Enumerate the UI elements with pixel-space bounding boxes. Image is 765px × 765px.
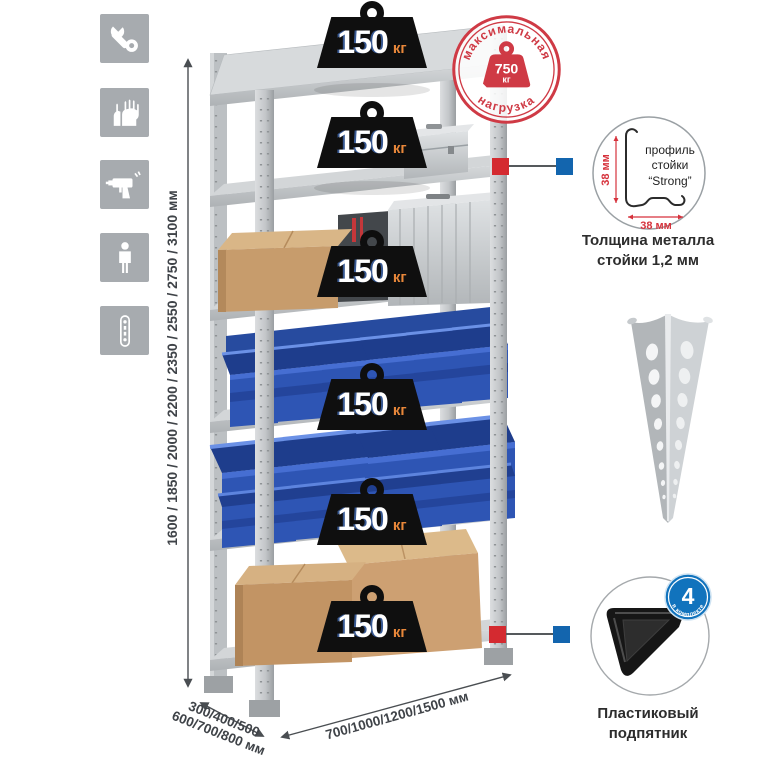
- profile-label-3: “Strong”: [648, 174, 691, 188]
- stamp-unit: кг: [502, 75, 510, 85]
- weight-value: 150: [337, 608, 387, 645]
- corner-post-image: [598, 300, 738, 535]
- max-load-stamp: максимальная нагрузка 750 кг: [450, 13, 563, 126]
- profile-dim-vertical: 38 мм: [600, 154, 612, 186]
- profile-caption: Толщина металла стойки 1,2 мм: [560, 231, 736, 270]
- profile-label-2: стойки: [652, 158, 689, 172]
- product-infographic: 150кг 150кг 150кг 150кг 150кг 150кг макс…: [0, 0, 765, 765]
- weight-shadow: [314, 83, 430, 97]
- load-weight-2: 150кг: [317, 101, 427, 168]
- callout-marker-red-top: [492, 158, 509, 175]
- weight-value: 150: [337, 124, 387, 161]
- weight-unit: кг: [393, 402, 407, 419]
- load-weight-3: 150кг: [317, 230, 427, 297]
- weight-value: 150: [337, 24, 387, 61]
- callout-marker-blue-bottom: [553, 626, 570, 643]
- weight-unit: кг: [393, 624, 407, 641]
- foot-caption-line1: Пластиковый: [560, 704, 736, 724]
- post-profile-detail: 38 мм 38 мм профиль стойки “Strong”: [590, 114, 708, 232]
- callout-marker-blue-top: [556, 158, 573, 175]
- load-weight-5: 150кг: [317, 478, 427, 545]
- weight-unit: кг: [393, 40, 407, 57]
- weight-value: 150: [337, 501, 387, 538]
- weight-value: 150: [337, 386, 387, 423]
- load-weight-4: 150кг: [317, 363, 427, 430]
- badge-value: 4: [682, 583, 695, 609]
- profile-caption-line2: стойки 1,2 мм: [560, 251, 736, 271]
- callout-line-bottom: [497, 633, 561, 635]
- load-weight-6: 150кг: [317, 585, 427, 652]
- weight-unit: кг: [393, 269, 407, 286]
- profile-caption-line1: Толщина металла: [560, 231, 736, 251]
- weight-unit: кг: [393, 517, 407, 534]
- load-weight-1: 150кг: [317, 1, 427, 68]
- callout-line-top: [500, 165, 564, 167]
- weight-unit: кг: [393, 140, 407, 157]
- quantity-badge: 4 в комплекте: [664, 573, 712, 621]
- foot-caption: Пластиковый подпятник: [560, 704, 736, 743]
- callout-marker-red-bottom: [489, 626, 506, 643]
- profile-label-1: профиль: [645, 143, 695, 157]
- height-dimension-label: 1600 / 1850 / 2000 / 2200 / 2350 / 2550 …: [164, 48, 180, 688]
- weight-value: 150: [337, 253, 387, 290]
- foot-caption-line2: подпятник: [560, 724, 736, 744]
- weight-shadow: [314, 181, 430, 195]
